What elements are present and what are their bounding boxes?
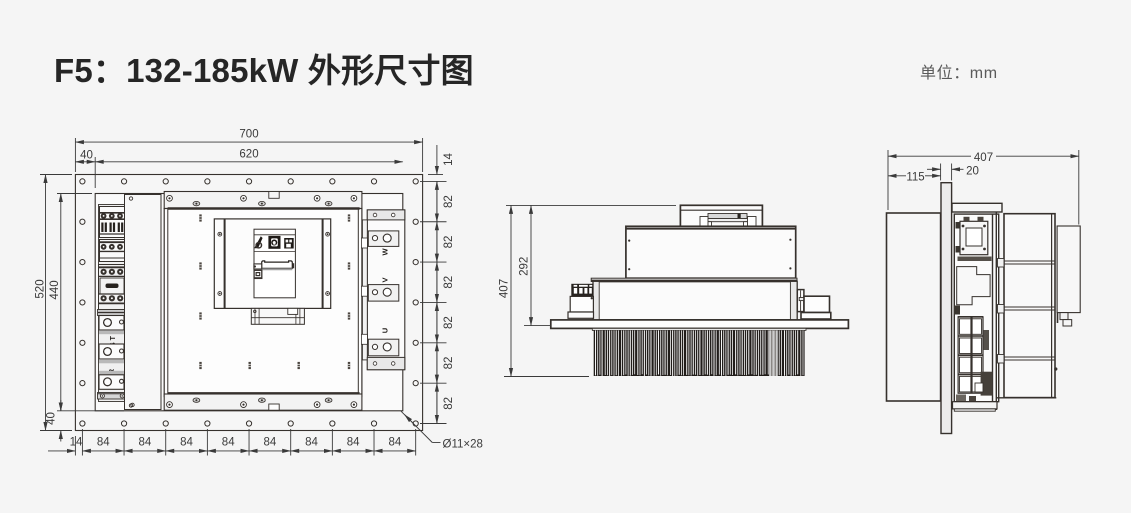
svg-text:115: 115 [906, 172, 924, 184]
svg-text:292: 292 [518, 257, 530, 276]
svg-text:U: U [381, 328, 390, 333]
svg-text:84: 84 [263, 436, 276, 448]
svg-text:82: 82 [443, 397, 455, 410]
svg-text:407: 407 [498, 279, 510, 298]
svg-text:84: 84 [138, 436, 151, 448]
svg-text:700: 700 [239, 128, 258, 140]
svg-text:20: 20 [966, 166, 979, 178]
svg-text:40: 40 [46, 412, 58, 425]
svg-text:84: 84 [388, 436, 401, 448]
svg-text:F5：132-185kW 外形尺寸图: F5：132-185kW 外形尺寸图 [54, 52, 474, 89]
svg-text:520: 520 [35, 279, 47, 298]
svg-text:440: 440 [49, 280, 61, 299]
svg-text:82: 82 [443, 316, 455, 329]
svg-text:84: 84 [222, 436, 235, 448]
svg-text:40: 40 [80, 150, 93, 162]
svg-text:82: 82 [443, 276, 455, 289]
svg-text:84: 84 [347, 436, 360, 448]
svg-text:V: V [381, 277, 390, 282]
svg-text:620: 620 [239, 149, 258, 161]
svg-text:14: 14 [70, 436, 83, 448]
svg-text:84: 84 [305, 436, 318, 448]
svg-text:Ø11×28: Ø11×28 [443, 439, 483, 451]
svg-text:84: 84 [97, 436, 110, 448]
svg-text:407: 407 [974, 152, 993, 164]
svg-text:82: 82 [443, 195, 455, 208]
svg-text:84: 84 [180, 436, 193, 448]
svg-text:单位：mm: 单位：mm [920, 64, 998, 82]
svg-text:14: 14 [443, 153, 455, 166]
svg-text:82: 82 [443, 357, 455, 370]
svg-text:W: W [381, 248, 390, 256]
svg-text:82: 82 [443, 236, 455, 249]
